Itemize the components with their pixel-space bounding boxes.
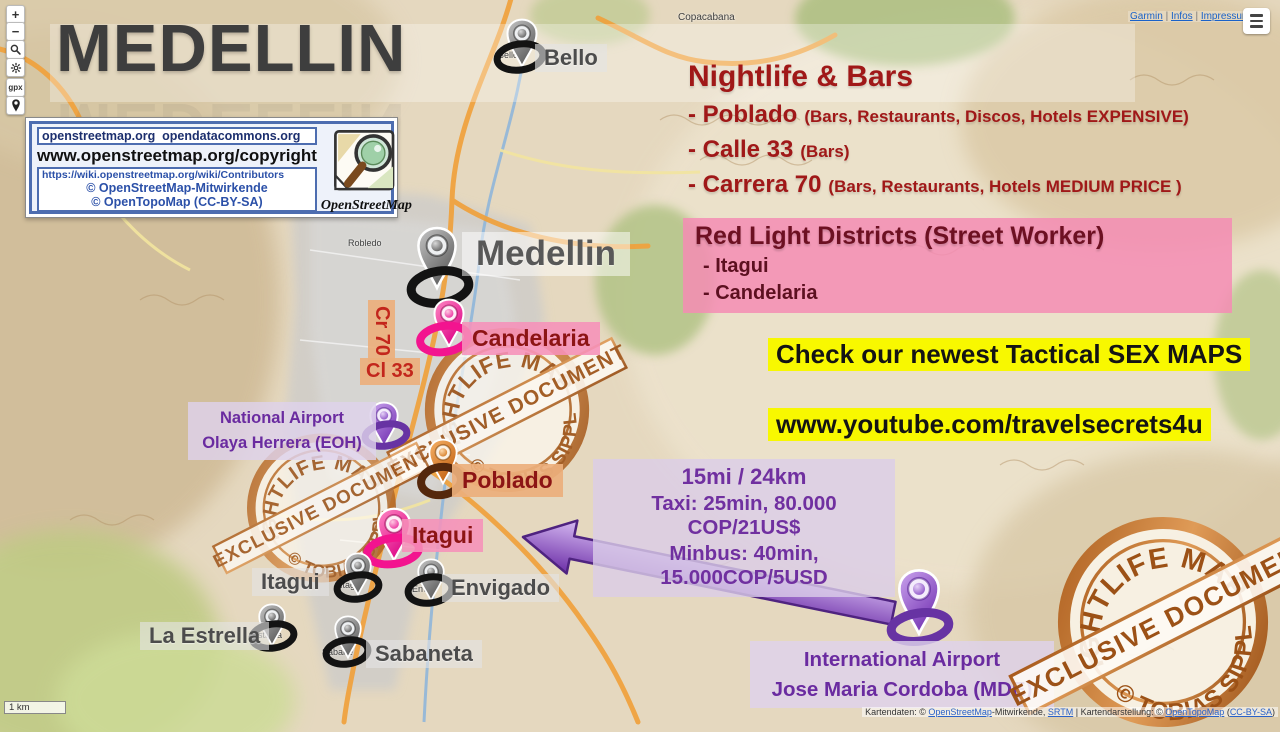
attr-link-srtm[interactable]: SRTM [1048, 707, 1073, 717]
nightlife-item-detail: (Bars) [800, 142, 849, 162]
nightlife-item-detail: (Bars, Restaurants, Discos, Hotels EXPEN… [804, 107, 1189, 127]
gear-icon [10, 62, 22, 74]
national-airport-line2: Olaya Herrera (EOH) [196, 431, 368, 456]
red-light-heading: Red Light Districts (Street Worker) [695, 222, 1220, 251]
promo-banner: Check our newest Tactical SEX MAPS [768, 338, 1250, 371]
hamburger-menu-button[interactable] [1243, 8, 1270, 34]
nightlife-panel: Nightlife & Bars - Poblado (Bars, Restau… [688, 60, 1189, 199]
nightlife-item: - Calle 33 (Bars) [688, 136, 1189, 164]
district-label-candelaria: Candelaria [462, 322, 600, 355]
map-scale-bar: 1 km [4, 701, 66, 714]
attr-link-ccbysa[interactable]: CC-BY-SA [1230, 707, 1272, 717]
osm-copyright-url[interactable]: www.openstreetmap.org/copyright [37, 146, 317, 166]
national-airport-label: National Airport Olaya Herrera (EOH) [188, 402, 376, 460]
nightlife-item-detail: (Bars, Restaurants, Hotels MEDIUM PRICE … [828, 177, 1181, 197]
attr-text: -Mitwirkende, [992, 707, 1048, 717]
nightlife-heading: Nightlife & Bars [688, 60, 1189, 94]
international-airport-label: International Airport Jose Maria Cordoba… [750, 641, 1054, 708]
osm-domains: openstreetmap.org opendatacommons.org [37, 127, 317, 145]
city-label-la-estrella: La Estrella [140, 622, 269, 650]
district-label-itagui: Itagui [402, 519, 483, 552]
map-town-label: Copacabana [678, 12, 735, 23]
transfer-info-box: 15mi / 24km Taxi: 25min, 80.000 COP/21US… [593, 459, 895, 597]
red-light-districts-panel: Red Light Districts (Street Worker) - It… [683, 218, 1232, 313]
nightlife-item: - Poblado (Bars, Restaurants, Discos, Ho… [688, 101, 1189, 129]
page-title: MEDELLIN [56, 10, 406, 87]
street-label-carrera-70: Cr 70 [368, 300, 395, 362]
national-airport-line1: National Airport [196, 406, 368, 431]
link-garmin[interactable]: Garmin [1130, 11, 1163, 22]
city-label-envigado: Envigado [442, 574, 559, 602]
youtube-link[interactable]: www.youtube.com/travelsecrets4u [768, 408, 1211, 441]
street-label-calle-33: Cl 33 [360, 358, 420, 385]
attr-link-opentopomap[interactable]: OpenTopoMap [1165, 707, 1224, 717]
city-label-medellin: Medellin [462, 232, 630, 276]
osm-contributors-box: https://wiki.openstreetmap.org/wiki/Cont… [37, 167, 317, 212]
nightlife-item-name: - Calle 33 [688, 136, 793, 164]
link-infos[interactable]: Infos [1171, 11, 1193, 22]
locate-button[interactable] [6, 96, 25, 115]
city-label-bello: Bello [535, 44, 607, 72]
openstreetmap-logo-text: OpenStreetMap [321, 198, 412, 214]
attr-text: ) [1272, 707, 1275, 717]
international-airport-line2: Jose Maria Cordoba (MDE) [758, 675, 1046, 705]
nightlife-item: - Carrera 70 (Bars, Restaurants, Hotels … [688, 171, 1189, 199]
osm-attribution-box: openstreetmap.org opendatacommons.org ww… [25, 117, 398, 218]
attr-link-openstreetmap[interactable]: OpenStreetMap [928, 707, 992, 717]
transfer-distance: 15mi / 24km [593, 464, 895, 490]
header-links: Garmin | Infos | Impressum [1128, 11, 1252, 22]
settings-button[interactable] [6, 58, 25, 77]
link-separator: | [1195, 11, 1198, 22]
red-light-item: - Itagui [703, 255, 1220, 278]
osm-mitwirkende: © OpenStreetMap-Mitwirkende [42, 181, 312, 195]
search-icon [10, 44, 21, 55]
international-airport-line1: International Airport [758, 645, 1046, 675]
transfer-taxi: Taxi: 25min, 80.000 COP/21US$ [593, 492, 895, 540]
search-button[interactable] [6, 40, 25, 59]
zoom-out-button[interactable]: − [6, 22, 25, 41]
marker-ring [331, 569, 385, 605]
map-viewer-page: { "header": { "title": "MEDELLIN", "link… [0, 0, 1280, 720]
osm-contributors-url[interactable]: https://wiki.openstreetmap.org/wiki/Cont… [42, 169, 312, 181]
nightlife-item-name: - Poblado [688, 101, 797, 129]
location-pin-icon [11, 99, 21, 112]
opentopomap-license: © OpenTopoMap (CC-BY-SA) [42, 195, 312, 209]
openstreetmap-logo [330, 126, 402, 198]
watermark-stamp: NIGHTLIFE MAPS © TOBIAS SIPPL EXCLUSIVE … [1020, 512, 1280, 732]
attr-text: Kartendaten: © [865, 707, 928, 717]
transfer-minibus: Minbus: 40min, 15.000COP/5USD [593, 542, 895, 590]
attr-text: | Kartendarstellung: © [1073, 707, 1165, 717]
map-attribution: Kartendaten: © OpenStreetMap-Mitwirkende… [862, 707, 1278, 717]
nightlife-item-name: - Carrera 70 [688, 171, 821, 199]
gpx-button[interactable]: gpx [6, 78, 25, 97]
link-separator: | [1166, 11, 1169, 22]
city-label-itagui: Itagui [252, 568, 329, 596]
city-label-sabaneta: Sabaneta [366, 640, 482, 668]
map-town-label: Robledo [348, 238, 382, 248]
district-label-poblado: Poblado [452, 464, 563, 497]
red-light-item: - Candelaria [703, 282, 1220, 305]
